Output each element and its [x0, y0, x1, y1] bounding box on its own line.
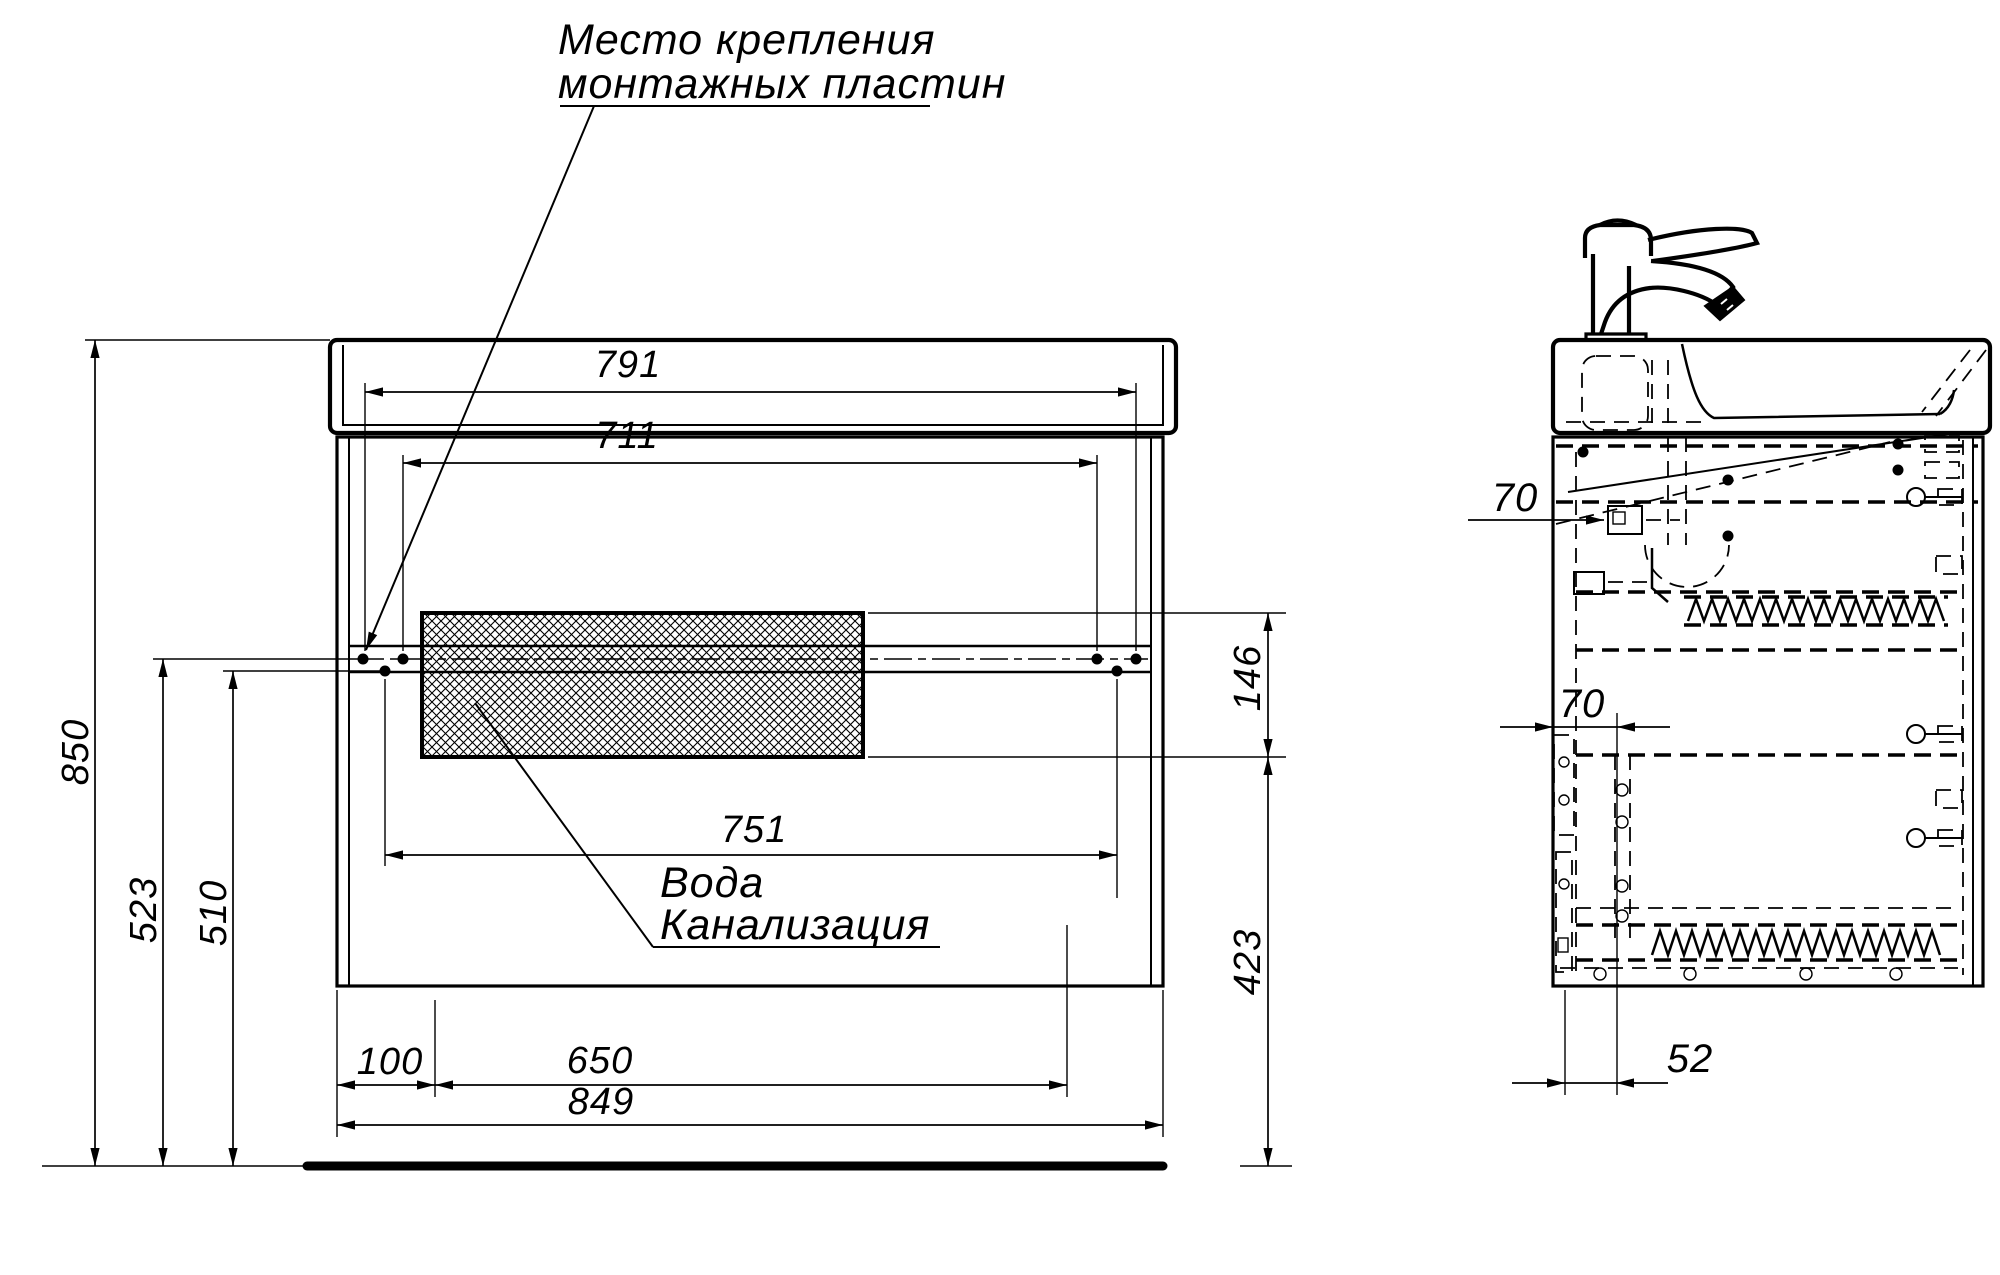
- side-dimensions: 70 70 52: [1468, 476, 1713, 1095]
- dim-100-label: 100: [357, 1041, 423, 1083]
- dim-70-lower-label: 70: [1559, 682, 1606, 726]
- dim-70-upper-label: 70: [1492, 476, 1539, 520]
- dim-146: 146: [868, 613, 1286, 757]
- dim-423: 423: [1227, 757, 1292, 1166]
- mounting-screw: [1131, 654, 1142, 665]
- mounting-screw: [358, 654, 369, 665]
- water-label: Вода: [660, 859, 764, 907]
- dim-100: 100: [337, 990, 435, 1137]
- mounting-zone-hatch: [422, 613, 863, 757]
- drawer-slide-lower: [1652, 931, 1940, 955]
- dim-510: 510: [193, 671, 380, 1166]
- dim-650: 650: [435, 925, 1067, 1097]
- dim-52-label: 52: [1667, 1037, 1714, 1081]
- dim-70-lower: 70: [1500, 682, 1670, 1095]
- mounting-screw: [1112, 666, 1123, 677]
- faucet-aerator: [1705, 287, 1744, 320]
- dim-523-label: 523: [123, 877, 165, 943]
- side-sink-top: [1553, 340, 1990, 433]
- dim-850: 850: [55, 340, 330, 1166]
- drawer-slide-upper: [1688, 599, 1944, 621]
- wall-bracket-upper: [1608, 506, 1680, 534]
- dim-791-label: 791: [595, 344, 661, 386]
- dim-650-label: 650: [567, 1040, 633, 1082]
- vanity-technical-drawing: Место крепления монтажных пластин Вода К…: [0, 0, 2000, 1275]
- side-view: [1553, 221, 1990, 987]
- dim-711-label: 711: [595, 415, 659, 457]
- mounting-screw: [1092, 654, 1103, 665]
- side-faucet: [1585, 221, 1757, 341]
- mounting-screw: [398, 654, 409, 665]
- dim-510-label: 510: [193, 880, 235, 946]
- dim-849-label: 849: [568, 1081, 634, 1123]
- dim-523: 523: [123, 659, 356, 1166]
- dim-70-upper: 70: [1468, 476, 1604, 520]
- mounting-screw: [380, 666, 391, 677]
- note-line-2: монтажных пластин: [558, 60, 1006, 108]
- dim-850-label: 850: [55, 719, 97, 785]
- front-view: Место крепления монтажных пластин Вода К…: [42, 16, 1176, 1166]
- note-leader-line: [366, 106, 594, 650]
- dim-423-label: 423: [1227, 929, 1269, 995]
- dim-52: 52: [1512, 990, 1713, 1095]
- dim-751-label: 751: [721, 809, 787, 851]
- drawing-sheet: Место крепления монтажных пластин Вода К…: [0, 0, 2000, 1275]
- front-sink-top: [330, 340, 1176, 433]
- dim-791: 791: [365, 344, 1136, 651]
- mounting-plate-note: Место крепления монтажных пластин: [366, 16, 1006, 650]
- sewer-label: Канализация: [660, 901, 930, 949]
- hinge-glyph: [1907, 829, 1962, 847]
- hinge-glyph: [1907, 725, 1962, 743]
- dim-849: 849: [337, 990, 1163, 1137]
- note-line-1: Место крепления: [558, 16, 935, 64]
- dim-146-label: 146: [1227, 645, 1269, 711]
